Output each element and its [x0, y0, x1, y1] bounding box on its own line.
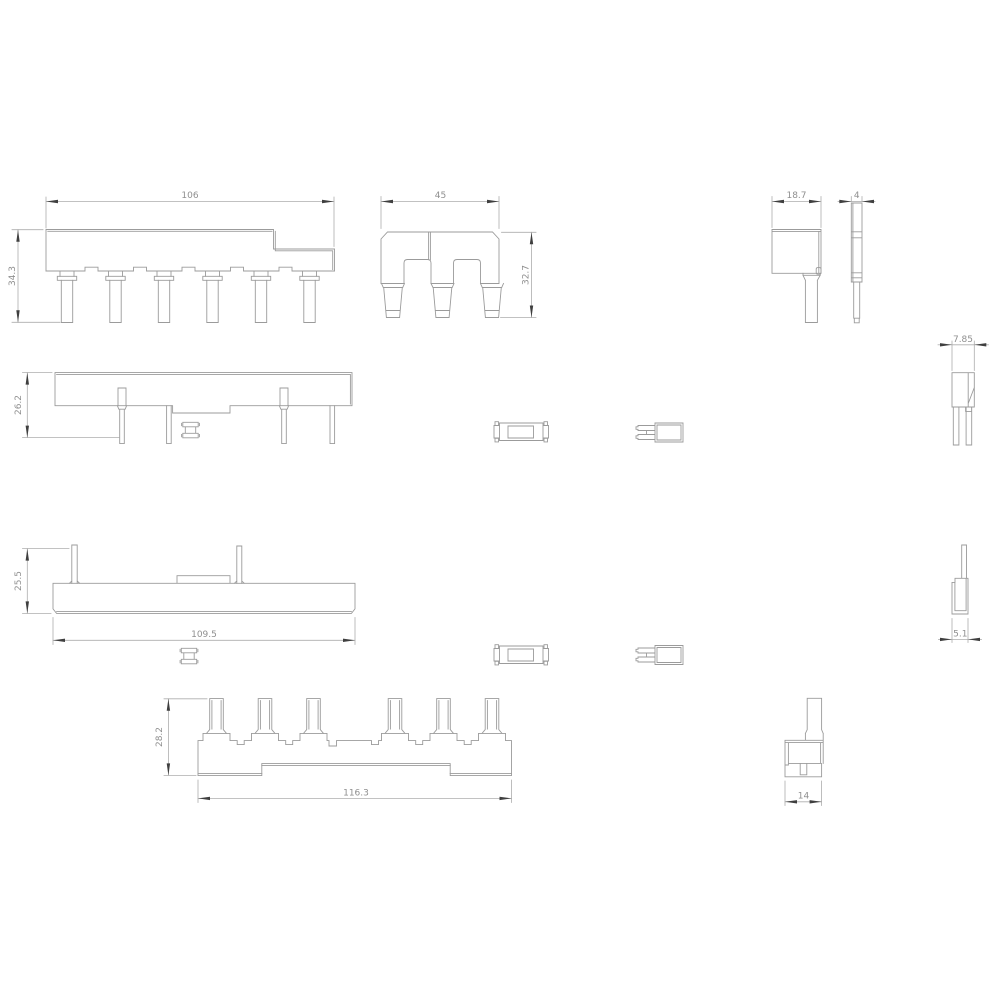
- dim-label-adapter-height: 26.2: [14, 395, 24, 415]
- comb-center-seam: [429, 232, 431, 260]
- fork-top-view-a: [636, 423, 683, 442]
- busbar-pin-collar-lines: [60, 276, 317, 280]
- ext-busbar-height: [12, 230, 60, 323]
- view-foot-side: [785, 698, 823, 777]
- dim-label-comb-height: 32.7: [522, 265, 532, 285]
- view-blade-profile: [851, 203, 862, 323]
- ext-adapter-height: [23, 373, 120, 438]
- dim-label-foot-width: 14: [798, 792, 810, 802]
- clip-top-view-b: [494, 645, 549, 665]
- dim-label-busbar-width: 106: [181, 191, 198, 201]
- dimension-labels: 106 34.3 45 32.7 18.7 4 7.85 26.2 25.5 1…: [8, 191, 973, 802]
- busbar-outline: [46, 230, 335, 272]
- bottom-bar-lip-lines: [198, 765, 512, 773]
- end-cap-body: [772, 230, 821, 274]
- view-pin-profile: [952, 545, 968, 614]
- foot-body: [785, 698, 823, 777]
- view-end-cap-side: [772, 230, 821, 323]
- bottom-bar-pins: [207, 699, 503, 734]
- fork-profile-body: [952, 373, 974, 445]
- drawing-page: 106 34.3 45 32.7 18.7 4 7.85 26.2 25.5 1…: [0, 0, 1000, 1000]
- blade-body: [851, 203, 862, 323]
- bottom-bar-pin-inner-lines: [212, 701, 497, 729]
- dim-label-bottom-bar-height: 28.2: [155, 727, 165, 747]
- dim-label-end-cap-width: 18.7: [786, 191, 806, 201]
- clip-side-view-a: [182, 422, 200, 438]
- pin-profile-body: [952, 545, 968, 614]
- dim-label-blade-width: 4: [854, 191, 860, 201]
- ext-bottom-bar-height: [164, 699, 207, 776]
- technical-drawing-canvas: 106 34.3 45 32.7 18.7 4 7.85 26.2 25.5 1…: [0, 0, 1000, 1000]
- adapter-collar-pins: [117, 388, 288, 444]
- bottom-bar-outline: [198, 733, 512, 775]
- ext-busbar-width: [46, 197, 334, 247]
- view-busbar-front: [46, 230, 335, 323]
- dim-label-fork-profile-width: 7.85: [953, 335, 973, 345]
- clip-top-view-a: [494, 422, 549, 442]
- clip-side-view-b: [180, 648, 198, 664]
- view-lower-bar-front: [53, 545, 355, 613]
- fork-top-view-b: [636, 646, 683, 665]
- dim-label-lower-bar-width: 109.5: [191, 630, 217, 640]
- dim-label-comb-width: 45: [435, 191, 446, 201]
- comb-pin-feet: [382, 284, 504, 288]
- view-fork-profile: [952, 373, 974, 445]
- busbar-inner-shell: [48, 231, 333, 269]
- view-comb-side: [381, 232, 504, 318]
- ext-lower-bar-height: [23, 549, 70, 614]
- lower-bar-outline: [53, 576, 355, 614]
- object-lines: [46, 203, 974, 777]
- comb-outline: [381, 232, 499, 284]
- dim-label-bottom-bar-width: 116.3: [343, 788, 369, 798]
- dim-label-busbar-height: 34.3: [8, 266, 18, 286]
- view-bottom-bar-front: [198, 699, 512, 776]
- busbar-pins: [57, 271, 319, 323]
- end-cap-pin: [803, 273, 820, 322]
- dim-label-lower-bar-height: 25.5: [14, 571, 24, 591]
- dim-label-pin-profile-width: 5.1: [953, 630, 967, 640]
- lower-bar-pins: [69, 545, 244, 583]
- comb-pins: [384, 288, 502, 318]
- adapter-outline: [55, 373, 352, 413]
- ext-fork-profile-width: [952, 341, 974, 371]
- view-adapter-front: [55, 373, 352, 444]
- busbar-bottom-edge: [46, 267, 335, 271]
